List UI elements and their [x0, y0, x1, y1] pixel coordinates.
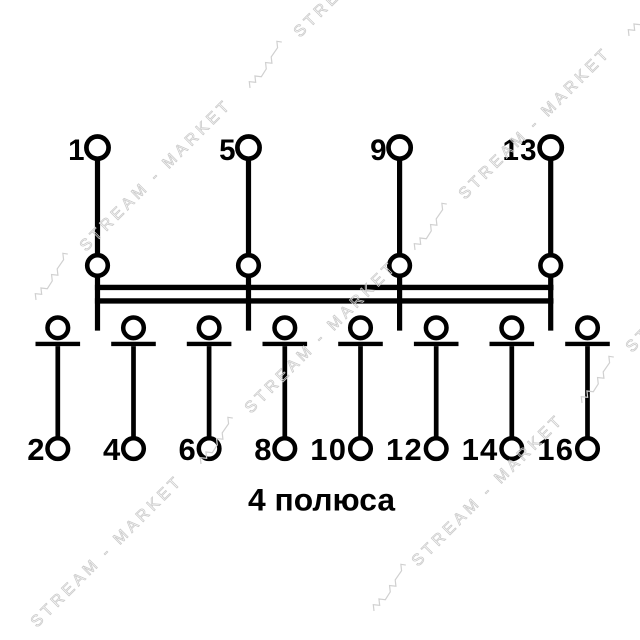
svg-text:2: 2	[27, 432, 44, 467]
svg-text:5: 5	[219, 134, 235, 167]
svg-text:1: 1	[68, 134, 84, 167]
svg-text:4 полюса: 4 полюса	[248, 482, 395, 518]
svg-text:6: 6	[179, 432, 196, 467]
svg-text:12: 12	[386, 432, 423, 467]
svg-text:9: 9	[370, 134, 386, 167]
svg-text:10: 10	[310, 432, 347, 467]
svg-text:8: 8	[254, 432, 271, 467]
svg-text:14: 14	[462, 432, 499, 467]
svg-text:4: 4	[103, 432, 121, 467]
